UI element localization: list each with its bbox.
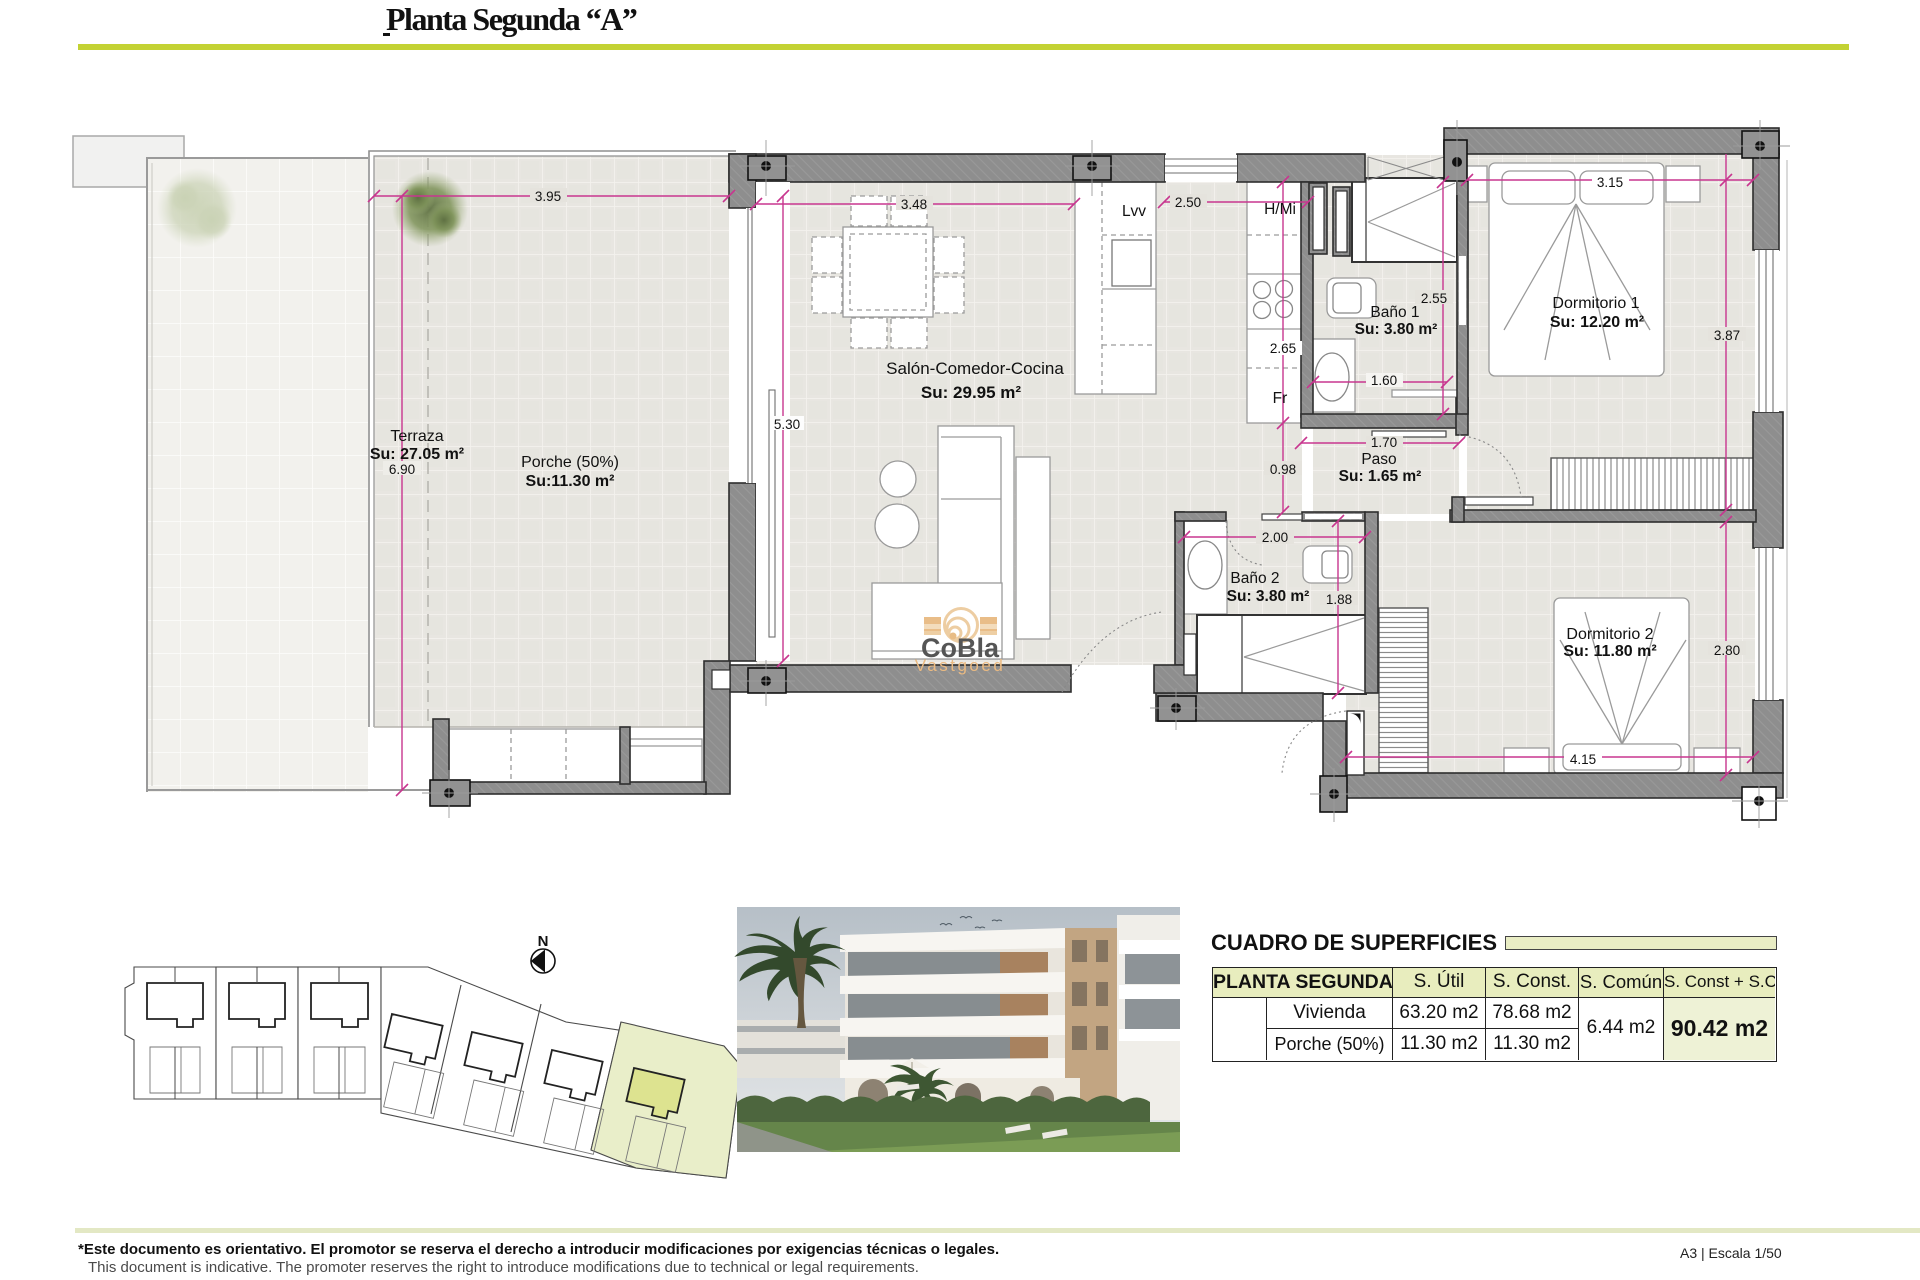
svg-text:2.80: 2.80 <box>1714 643 1740 658</box>
svg-text:Fr: Fr <box>1273 390 1288 407</box>
svg-text:Su: 11.80 m²: Su: 11.80 m² <box>1563 643 1656 660</box>
svg-text:1.88: 1.88 <box>1326 592 1352 607</box>
svg-text:2.65: 2.65 <box>1270 341 1296 356</box>
svg-text:Baño 1: Baño 1 <box>1370 304 1419 321</box>
svg-text:3.87: 3.87 <box>1714 328 1740 343</box>
svg-text:Dormitorio 1: Dormitorio 1 <box>1552 295 1639 312</box>
svg-text:Su:11.30 m²: Su:11.30 m² <box>526 473 615 490</box>
svg-text:Vastgoed: Vastgoed <box>915 656 1006 675</box>
svg-text:Su: 29.95 m²: Su: 29.95 m² <box>921 383 1021 402</box>
svg-text:Su: 27.05 m²: Su: 27.05 m² <box>370 446 464 463</box>
svg-text:3.48: 3.48 <box>901 197 927 212</box>
svg-text:Dormitorio 2: Dormitorio 2 <box>1566 626 1653 643</box>
svg-text:Paso: Paso <box>1361 451 1396 468</box>
svg-text:3.15: 3.15 <box>1597 175 1623 190</box>
svg-text:H/Mi: H/Mi <box>1264 201 1296 218</box>
svg-text:Baño 2: Baño 2 <box>1230 570 1279 587</box>
svg-text:3.95: 3.95 <box>535 189 561 204</box>
svg-text:Terraza: Terraza <box>390 428 443 445</box>
svg-text:2.55: 2.55 <box>1421 291 1447 306</box>
svg-text:2.00: 2.00 <box>1262 530 1288 545</box>
svg-text:5.30: 5.30 <box>774 417 800 432</box>
svg-text:Lvv: Lvv <box>1122 203 1146 220</box>
svg-text:6.90: 6.90 <box>389 462 415 477</box>
svg-text:0.98: 0.98 <box>1270 462 1296 477</box>
svg-text:Su: 1.65 m²: Su: 1.65 m² <box>1339 468 1422 485</box>
svg-text:Salón-Comedor-Cocina: Salón-Comedor-Cocina <box>886 359 1064 378</box>
svg-text:Su: 3.80 m²: Su: 3.80 m² <box>1355 321 1438 338</box>
svg-text:Su: 12.20 m²: Su: 12.20 m² <box>1550 314 1644 331</box>
svg-text:N: N <box>538 933 549 950</box>
svg-text:Porche (50%): Porche (50%) <box>521 454 619 471</box>
svg-text:1.70: 1.70 <box>1371 435 1397 450</box>
svg-text:2.50: 2.50 <box>1175 195 1201 210</box>
svg-text:1.60: 1.60 <box>1371 373 1397 388</box>
svg-text:4.15: 4.15 <box>1570 752 1596 767</box>
svg-text:Su: 3.80 m²: Su: 3.80 m² <box>1227 588 1310 605</box>
